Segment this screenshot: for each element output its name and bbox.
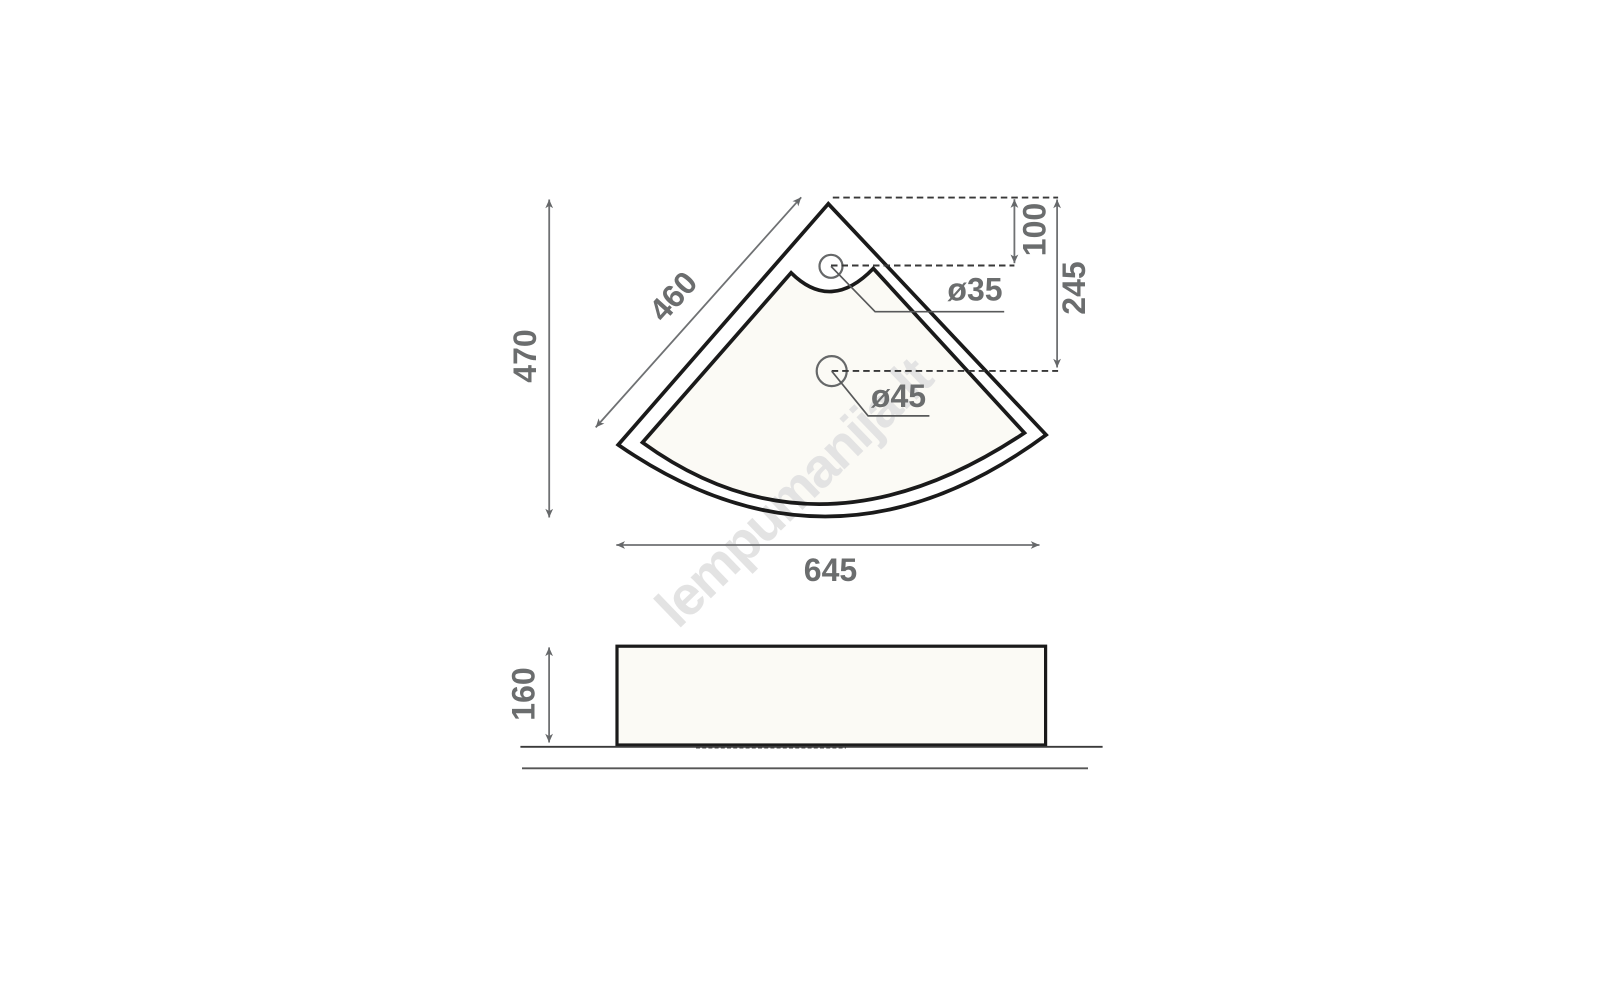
svg-text:645: 645 bbox=[804, 552, 857, 588]
svg-text:ø35: ø35 bbox=[947, 272, 1002, 308]
svg-text:160: 160 bbox=[505, 667, 541, 720]
svg-text:100: 100 bbox=[1016, 203, 1052, 256]
svg-text:ø45: ø45 bbox=[871, 378, 926, 414]
svg-text:460: 460 bbox=[642, 264, 704, 328]
svg-text:245: 245 bbox=[1056, 261, 1092, 314]
svg-text:470: 470 bbox=[507, 329, 543, 382]
